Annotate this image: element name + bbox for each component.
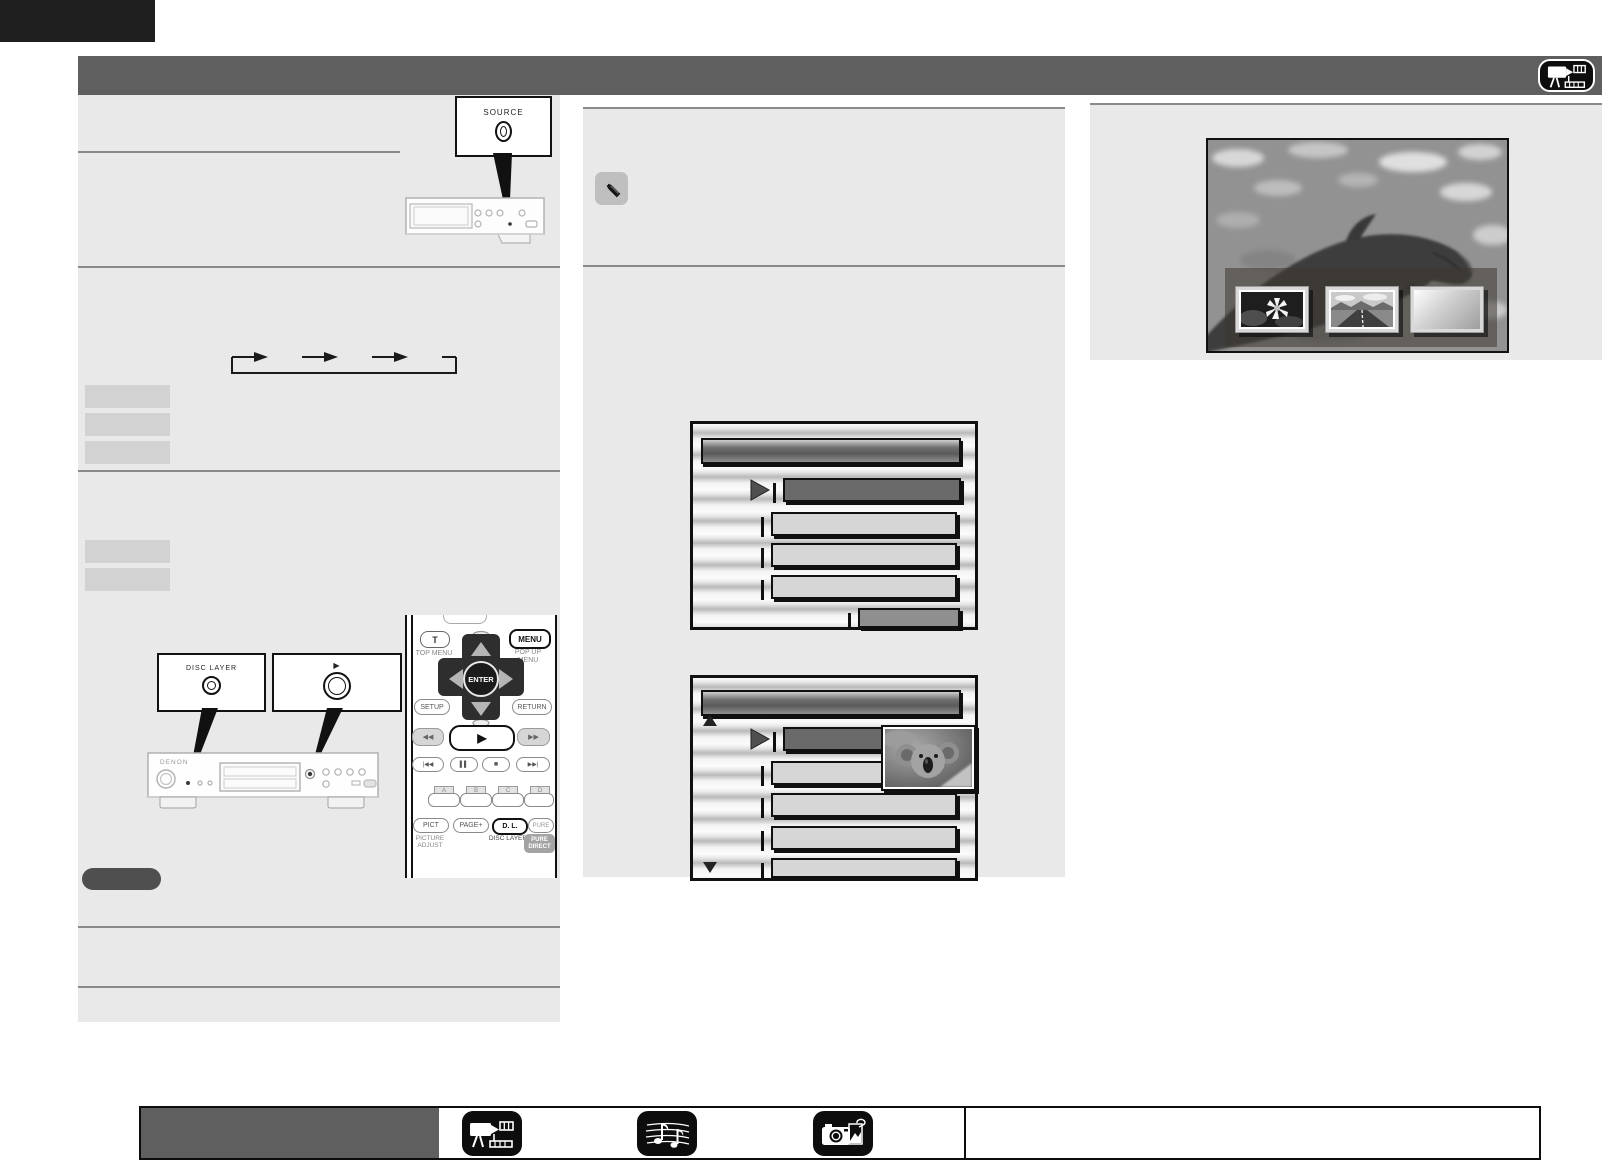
label-box (85, 540, 170, 563)
skip-back-button: |◀◀ (412, 757, 444, 772)
pure-direct-caption: PURE DIRECT (524, 834, 555, 853)
menu-item (771, 512, 957, 536)
dpad-enter-control: ENTER (435, 628, 527, 728)
return-button: RETURN (512, 699, 552, 715)
on-screen-menu-2 (690, 675, 978, 881)
label-box (85, 385, 170, 408)
left-column-panel: SOURCE (78, 95, 560, 1022)
section-divider (78, 986, 560, 988)
pause-button: ▌▌ (450, 757, 478, 772)
slideshow-screen-photo (1206, 138, 1509, 353)
source-button-icon (495, 121, 512, 142)
page-corner-tab (0, 0, 155, 42)
menu-title-bar (701, 690, 961, 716)
color-button-b (460, 793, 492, 807)
play-callout-label: ▶ (274, 661, 400, 670)
media-type-footer-bar (139, 1106, 1541, 1160)
menu-item (771, 575, 957, 599)
disc-layer-caption: DISC LAYER (488, 835, 528, 842)
movie-camera-icon (462, 1111, 522, 1156)
disc-layer-callout-label: DISC LAYER (159, 665, 264, 672)
menu-title-bar (701, 438, 961, 464)
play-button: ▶ (449, 725, 515, 751)
page-plus-button: PAGE+ (453, 818, 489, 833)
fast-forward-button: ▶▶ (517, 728, 550, 746)
manual-page: SOURCE (0, 0, 1605, 1163)
section-divider (78, 926, 560, 928)
play-button-callout: ▶ (272, 653, 402, 712)
stop-button: ■ (482, 757, 510, 772)
disc-layer-button-callout: DISC LAYER (157, 653, 266, 712)
koala-preview-thumbnail (881, 725, 976, 791)
menu-item (771, 793, 957, 817)
thumbnail-road (1325, 286, 1399, 333)
source-callout-label: SOURCE (457, 108, 550, 117)
procedure-panel (583, 265, 1065, 877)
color-button-a (428, 793, 460, 807)
menu-selected-item (783, 478, 961, 502)
footer-label-cell (141, 1108, 439, 1158)
color-button-c (492, 793, 524, 807)
cursor-arrow-icon (749, 728, 771, 750)
note-panel (583, 107, 1065, 267)
menu-item (771, 543, 957, 567)
thumbnail-blank (1410, 286, 1484, 333)
menu-item (771, 858, 957, 878)
on-screen-menu-1 (690, 421, 978, 630)
menu-selected-item (783, 727, 891, 751)
source-button-callout: SOURCE (455, 96, 552, 157)
pure-direct-button: PURE (528, 818, 554, 833)
label-box (85, 441, 170, 464)
cursor-arrow-icon (749, 479, 771, 501)
rewind-button: ◀◀ (412, 728, 444, 746)
scroll-down-icon (703, 862, 717, 873)
picture-adjust-button: PICT (413, 818, 449, 833)
footer-divider (964, 1108, 966, 1158)
disc-layer-remote-button: D. L. (492, 818, 528, 835)
color-button-d (524, 793, 554, 807)
mode-cycle-diagram (228, 347, 460, 377)
thumbnail-lily (1235, 286, 1309, 333)
player-brand-logo: DENON (160, 759, 188, 766)
note-pill (82, 868, 161, 890)
scroll-up-icon (703, 715, 717, 726)
player-front-small-illustration (398, 188, 558, 250)
section-divider (78, 151, 400, 153)
screen-example-panel (1090, 103, 1602, 360)
skip-forward-button: ▶▶| (516, 757, 550, 772)
play-button-icon (323, 672, 351, 700)
label-box (85, 568, 170, 591)
player-front-large-illustration: DENON (120, 745, 420, 815)
menu-value-bar (858, 608, 960, 628)
section-divider (78, 266, 560, 268)
disc-layer-button-icon (202, 676, 221, 695)
setup-button: SETUP (414, 699, 450, 715)
menu-item (771, 826, 957, 850)
section-header-bar (78, 56, 1602, 95)
music-notes-icon (637, 1111, 697, 1156)
movie-camera-icon (1538, 59, 1595, 92)
camera-photos-icon (813, 1111, 873, 1156)
menu-item (771, 761, 883, 785)
remote-control-illustration: T TOP MENU MENU POP UP MENU ENTER SETUP … (405, 615, 557, 878)
section-divider (78, 470, 560, 472)
enter-button-label: ENTER (468, 675, 494, 684)
remote-cropped-button (443, 615, 487, 624)
label-box (85, 413, 170, 436)
picture-adjust-caption: PICTURE ADJUST (409, 835, 451, 850)
pencil-note-icon (595, 172, 628, 205)
